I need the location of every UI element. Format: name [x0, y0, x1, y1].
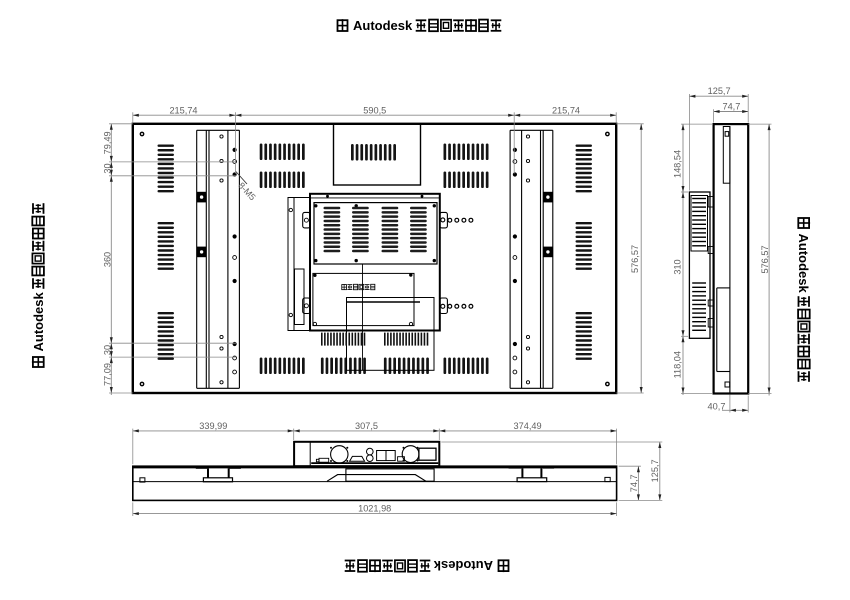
- svg-text:30: 30: [102, 345, 112, 355]
- svg-text:118,04: 118,04: [672, 351, 682, 378]
- svg-text:215,74: 215,74: [169, 105, 197, 115]
- svg-text:339,99: 339,99: [199, 421, 227, 431]
- svg-text:576,57: 576,57: [630, 245, 640, 273]
- svg-text:148,54: 148,54: [672, 150, 682, 178]
- svg-text:40,7: 40,7: [708, 401, 726, 411]
- svg-text:79,49: 79,49: [102, 131, 112, 154]
- svg-text:360: 360: [102, 252, 112, 267]
- svg-text:74,7: 74,7: [722, 102, 740, 112]
- svg-text:307,5: 307,5: [355, 421, 378, 431]
- svg-text:125,7: 125,7: [708, 86, 731, 96]
- svg-text:77,09: 77,09: [102, 363, 112, 386]
- svg-text:1021,98: 1021,98: [358, 503, 391, 513]
- svg-text:215,74: 215,74: [552, 105, 580, 115]
- svg-text:125,7: 125,7: [650, 459, 660, 482]
- svg-text:590,5: 590,5: [363, 105, 386, 115]
- svg-text:374,49: 374,49: [514, 421, 542, 431]
- svg-text:576,57: 576,57: [760, 245, 770, 273]
- svg-text:74,7: 74,7: [629, 474, 639, 492]
- svg-text:30: 30: [102, 163, 112, 173]
- svg-text:310: 310: [672, 259, 682, 274]
